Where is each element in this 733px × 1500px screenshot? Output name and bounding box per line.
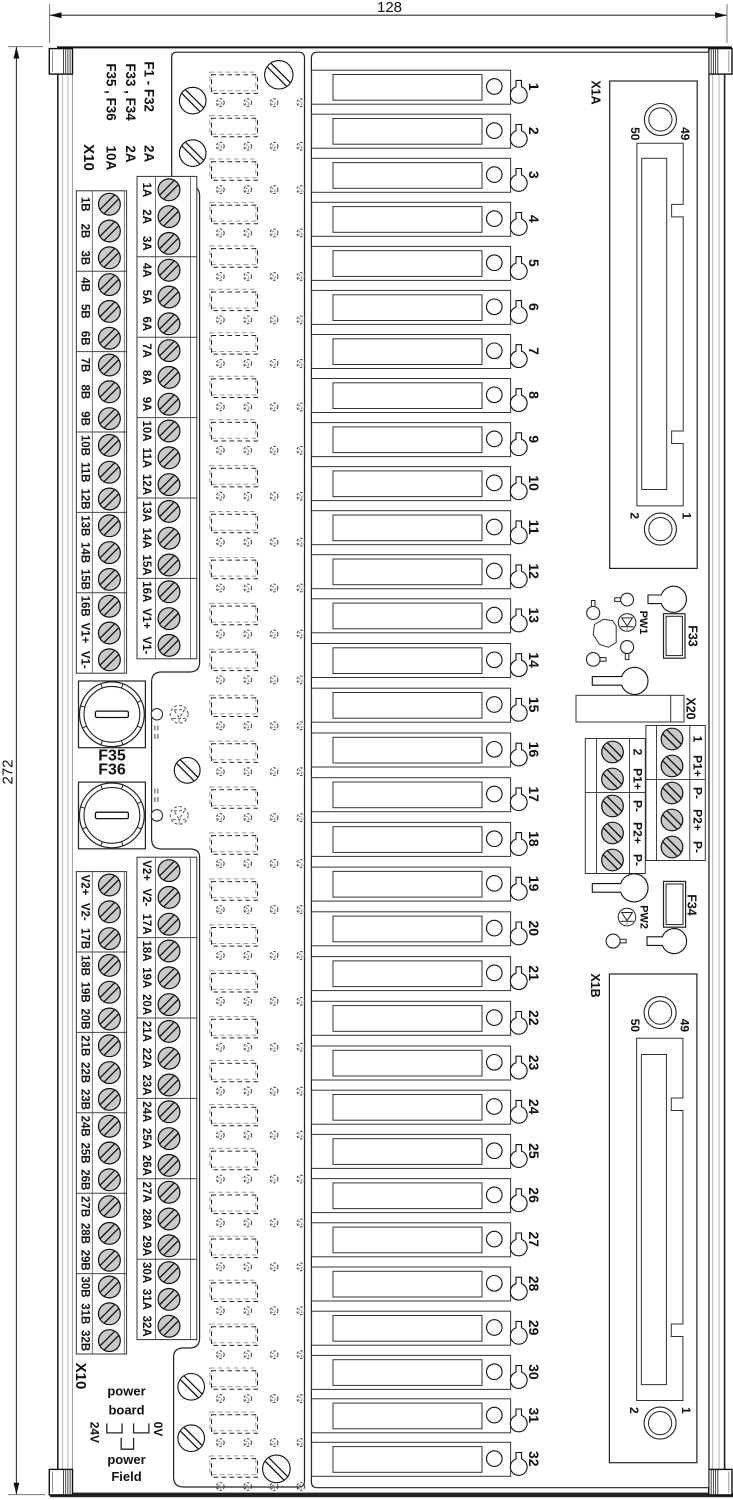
svg-text:5B: 5B [79, 304, 91, 319]
svg-text:9: 9 [526, 435, 542, 443]
svg-text:2B: 2B [79, 224, 91, 239]
svg-text:P-: P- [690, 841, 704, 853]
svg-text:P-: P- [630, 854, 644, 866]
svg-text:7A: 7A [140, 343, 152, 358]
svg-text:10A: 10A [140, 420, 152, 441]
svg-text:X1A: X1A [589, 80, 603, 104]
svg-text:board: board [108, 1403, 144, 1418]
svg-text:20B: 20B [79, 1008, 91, 1029]
svg-text:16: 16 [526, 742, 542, 758]
svg-text:9B: 9B [79, 411, 91, 426]
svg-text:19B: 19B [79, 982, 91, 1003]
svg-text:PW1: PW1 [637, 611, 649, 635]
svg-text:P1+: P1+ [690, 755, 704, 777]
svg-text:2A: 2A [140, 209, 152, 224]
svg-text:8A: 8A [140, 370, 152, 385]
svg-text:P-: P- [630, 800, 644, 812]
svg-text:4B: 4B [79, 277, 91, 292]
svg-text:13A: 13A [140, 501, 152, 522]
svg-text:V1+: V1+ [79, 623, 91, 644]
svg-text:P2+: P2+ [690, 809, 704, 831]
svg-text:30A: 30A [140, 1262, 152, 1283]
svg-text:Field: Field [111, 1469, 141, 1484]
svg-text:V2-: V2- [79, 903, 91, 921]
svg-text:29A: 29A [140, 1235, 152, 1256]
svg-text:P-: P- [690, 787, 704, 799]
svg-text:17A: 17A [140, 914, 152, 935]
svg-text:3A: 3A [140, 236, 152, 251]
svg-text:28: 28 [526, 1276, 542, 1292]
svg-text:14A: 14A [140, 528, 152, 549]
svg-text:15: 15 [526, 697, 542, 713]
svg-text:10A: 10A [104, 146, 119, 171]
svg-text:20A: 20A [140, 994, 152, 1015]
svg-text:272: 272 [0, 759, 17, 784]
svg-text:4A: 4A [140, 263, 152, 278]
svg-text:9A: 9A [140, 397, 152, 412]
svg-text:24: 24 [526, 1099, 542, 1115]
svg-text:P2+: P2+ [630, 822, 644, 844]
svg-text:3B: 3B [79, 250, 91, 265]
svg-text:6: 6 [526, 303, 542, 311]
svg-text:30B: 30B [79, 1276, 91, 1297]
svg-text:X10: X10 [72, 1363, 89, 1390]
svg-text:V2-: V2- [140, 888, 152, 906]
svg-text:7: 7 [526, 347, 542, 355]
svg-text:11B: 11B [79, 462, 91, 482]
svg-text:5A: 5A [140, 290, 152, 305]
svg-text:49: 49 [678, 127, 692, 141]
svg-text:V2+: V2+ [79, 875, 91, 896]
svg-text:17: 17 [526, 786, 542, 802]
svg-text:50: 50 [628, 1019, 642, 1033]
svg-text:power: power [107, 1384, 145, 1399]
svg-text:2A: 2A [141, 145, 156, 162]
svg-text:24B: 24B [79, 1116, 91, 1137]
svg-text:22: 22 [526, 1010, 542, 1026]
svg-text:14: 14 [526, 652, 542, 668]
svg-text:17B: 17B [79, 928, 91, 949]
svg-text:31B: 31B [79, 1303, 91, 1324]
svg-text:X1B: X1B [588, 973, 602, 997]
svg-text:31: 31 [526, 1408, 542, 1424]
svg-text:25A: 25A [140, 1128, 152, 1149]
svg-text:32B: 32B [79, 1330, 91, 1351]
svg-text:1B: 1B [79, 197, 91, 212]
svg-text:4: 4 [526, 215, 542, 223]
svg-text:3: 3 [526, 171, 542, 179]
svg-text:power: power [107, 1452, 145, 1467]
svg-text:32A: 32A [140, 1316, 152, 1337]
svg-text:13: 13 [526, 608, 542, 624]
svg-text:19: 19 [526, 876, 542, 892]
svg-text:19A: 19A [140, 967, 152, 988]
svg-text:50: 50 [628, 127, 642, 141]
svg-text:20: 20 [526, 921, 542, 937]
svg-text:18B: 18B [79, 955, 91, 976]
svg-text:F33 , F34: F33 , F34 [123, 63, 138, 121]
svg-text:0V: 0V [151, 1422, 165, 1437]
svg-text:1: 1 [679, 1407, 693, 1414]
svg-text:14B: 14B [79, 542, 91, 563]
svg-text:22A: 22A [140, 1048, 152, 1069]
svg-text:23A: 23A [140, 1074, 152, 1095]
svg-text:29: 29 [526, 1320, 542, 1336]
svg-text:25B: 25B [79, 1142, 91, 1163]
svg-text:P1+: P1+ [630, 768, 644, 790]
svg-text:V1-: V1- [79, 651, 91, 669]
svg-text:23: 23 [526, 1055, 542, 1071]
svg-text:V1+: V1+ [140, 608, 152, 629]
svg-text:12: 12 [526, 563, 542, 579]
svg-text:25: 25 [526, 1143, 542, 1159]
svg-text:1: 1 [680, 512, 694, 519]
svg-text:31A: 31A [140, 1289, 152, 1310]
svg-text:X20: X20 [684, 697, 698, 719]
svg-text:13B: 13B [79, 515, 91, 536]
svg-text:21: 21 [526, 965, 542, 981]
svg-text:F35 , F36: F35 , F36 [104, 63, 119, 120]
svg-text:8: 8 [526, 391, 542, 399]
svg-text:6A: 6A [140, 316, 152, 331]
svg-text:22B: 22B [79, 1062, 91, 1083]
svg-text:2: 2 [627, 512, 641, 519]
svg-text:32: 32 [526, 1451, 542, 1467]
svg-text:V2+: V2+ [140, 860, 152, 881]
svg-text:6B: 6B [79, 331, 91, 346]
svg-text:5: 5 [526, 259, 542, 267]
svg-text:21A: 21A [140, 1021, 152, 1042]
svg-text:2: 2 [630, 749, 644, 756]
svg-text:PW2: PW2 [638, 905, 650, 929]
svg-text:27: 27 [526, 1232, 542, 1248]
svg-text:21B: 21B [79, 1035, 91, 1056]
svg-text:1: 1 [526, 83, 542, 91]
svg-text:F36: F36 [98, 762, 126, 779]
svg-text:26A: 26A [140, 1155, 152, 1176]
svg-text:12A: 12A [140, 474, 152, 495]
svg-text:26: 26 [526, 1187, 542, 1203]
svg-text:11: 11 [526, 520, 542, 535]
svg-text:15B: 15B [79, 569, 91, 590]
svg-text:10: 10 [526, 475, 542, 491]
svg-text:18A: 18A [140, 940, 152, 961]
svg-text:1A: 1A [140, 182, 152, 197]
svg-text:128: 128 [377, 0, 402, 16]
svg-text:2A: 2A [123, 145, 138, 162]
svg-text:X10: X10 [80, 144, 97, 171]
svg-text:15A: 15A [140, 554, 152, 575]
svg-text:49: 49 [678, 1019, 692, 1033]
svg-text:F33: F33 [686, 625, 700, 647]
svg-text:28B: 28B [79, 1223, 91, 1244]
svg-text:V1-: V1- [140, 636, 152, 654]
svg-text:30: 30 [526, 1364, 542, 1380]
svg-text:16A: 16A [140, 581, 152, 602]
svg-text:F34: F34 [685, 894, 699, 916]
svg-text:8B: 8B [79, 384, 91, 399]
svg-text:1: 1 [690, 736, 704, 743]
svg-text:12B: 12B [79, 488, 91, 509]
svg-text:16B: 16B [79, 596, 91, 617]
svg-text:2: 2 [627, 1407, 641, 1414]
svg-text:29B: 29B [79, 1250, 91, 1271]
svg-text:28A: 28A [140, 1208, 152, 1229]
svg-text:11A: 11A [140, 448, 152, 468]
svg-text:24A: 24A [140, 1101, 152, 1122]
svg-text:7B: 7B [79, 358, 91, 373]
svg-text:27A: 27A [140, 1182, 152, 1203]
svg-text:26B: 26B [79, 1169, 91, 1190]
svg-text:F1 - F32: F1 - F32 [141, 61, 156, 112]
svg-text:23B: 23B [79, 1089, 91, 1110]
svg-text:18: 18 [526, 831, 542, 847]
svg-text:27B: 27B [79, 1196, 91, 1217]
svg-text:24V: 24V [87, 1422, 101, 1443]
svg-text:10B: 10B [79, 435, 91, 456]
svg-text:2: 2 [526, 127, 542, 135]
